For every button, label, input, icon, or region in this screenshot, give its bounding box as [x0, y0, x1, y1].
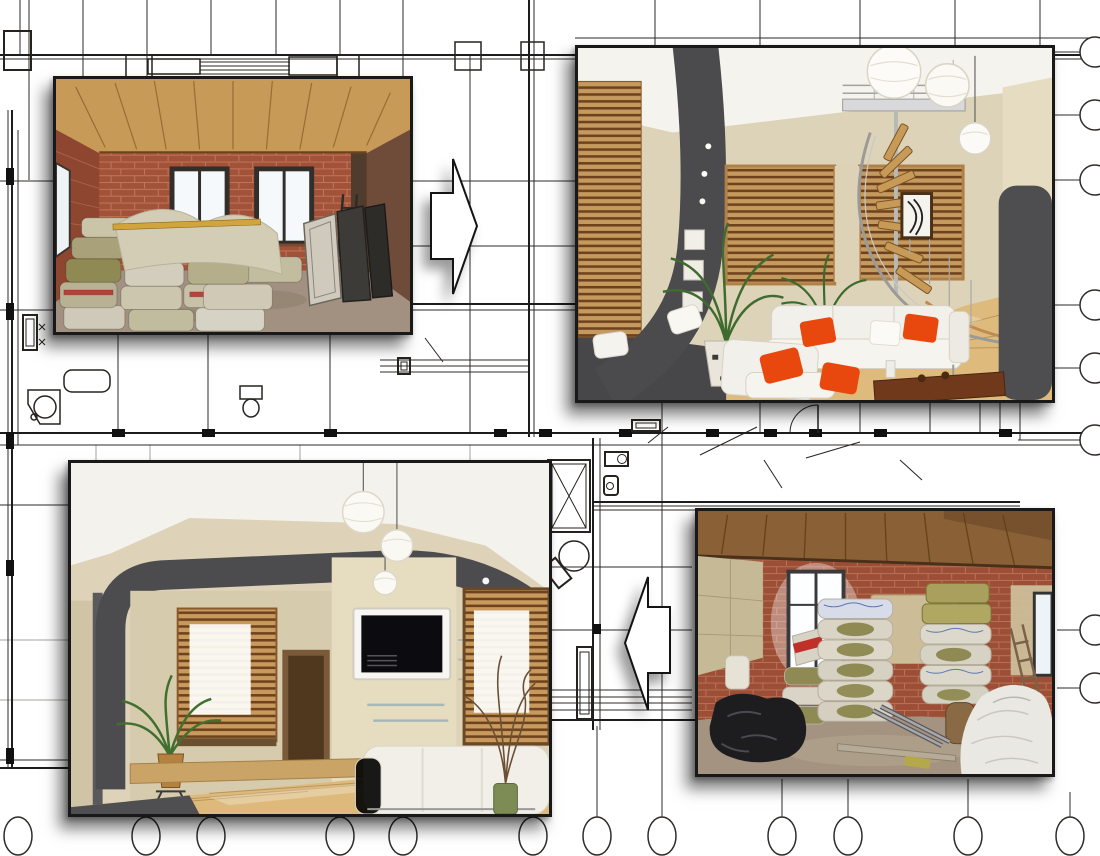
bathroom-symbols-below-photo [64, 370, 262, 417]
left-arrow-icon [625, 577, 670, 710]
right-arrow-icon [431, 159, 477, 294]
timber-ceiling [56, 79, 410, 153]
grid-bubble [1080, 165, 1100, 195]
dark-alcove [999, 186, 1052, 400]
wood-blinds-strip-left [578, 81, 641, 337]
grid-bubble [1056, 817, 1084, 855]
grid-bubble [834, 817, 862, 855]
window-symbol-left-wall [23, 315, 45, 350]
photo-after-bottom-left [68, 460, 552, 817]
grid-bubble [768, 817, 796, 855]
corner-sink-symbol [28, 390, 60, 424]
arrow-before-to-after-left [625, 577, 670, 710]
grid-bubble [583, 817, 611, 855]
arrow-before-to-after-right [431, 159, 477, 294]
elevator-shaft-symbol [548, 460, 590, 532]
door-swing-symbol [790, 405, 818, 433]
grid-bubble [326, 817, 354, 855]
inner-window-blinds [178, 609, 277, 747]
right-window-blinds [464, 589, 549, 744]
grid-bubble [4, 817, 32, 855]
grid-bubble [1080, 353, 1100, 383]
blueprint-collage-canvas [0, 0, 1100, 856]
insulation-stack-right [920, 583, 991, 703]
left-wall-strip [71, 601, 93, 807]
grid-bubble [389, 817, 417, 855]
window-left-edge [56, 163, 70, 257]
grid-bubble [197, 817, 225, 855]
grid-bubble [519, 817, 547, 855]
black-plastic-pile [710, 694, 807, 763]
inner-doorway [282, 650, 329, 768]
white-sack [726, 656, 750, 689]
right-window [1034, 593, 1052, 675]
orange-cushion [902, 313, 939, 343]
wall-tv [353, 609, 450, 680]
toilet-symbol [604, 452, 628, 495]
photo-after-top-right [575, 45, 1055, 403]
grid-bubble [1080, 615, 1100, 645]
sofa-white [355, 746, 549, 814]
grid-bubble [1080, 673, 1100, 703]
photo-before-top-left [53, 76, 413, 335]
grid-bubble [1080, 100, 1100, 130]
grid-bubble [648, 817, 676, 855]
photo-before-bottom-right [695, 508, 1055, 777]
plank-ceiling [698, 511, 1052, 568]
leaning-door-panels [304, 204, 393, 306]
grid-bubble [1080, 425, 1100, 455]
grid-bubble [132, 817, 160, 855]
grid-bubble [1080, 37, 1100, 67]
picture-frame [902, 194, 932, 238]
window-symbol-lower-wall [577, 647, 592, 719]
grid-bubble [954, 817, 982, 855]
grid-bubble [1080, 290, 1100, 320]
